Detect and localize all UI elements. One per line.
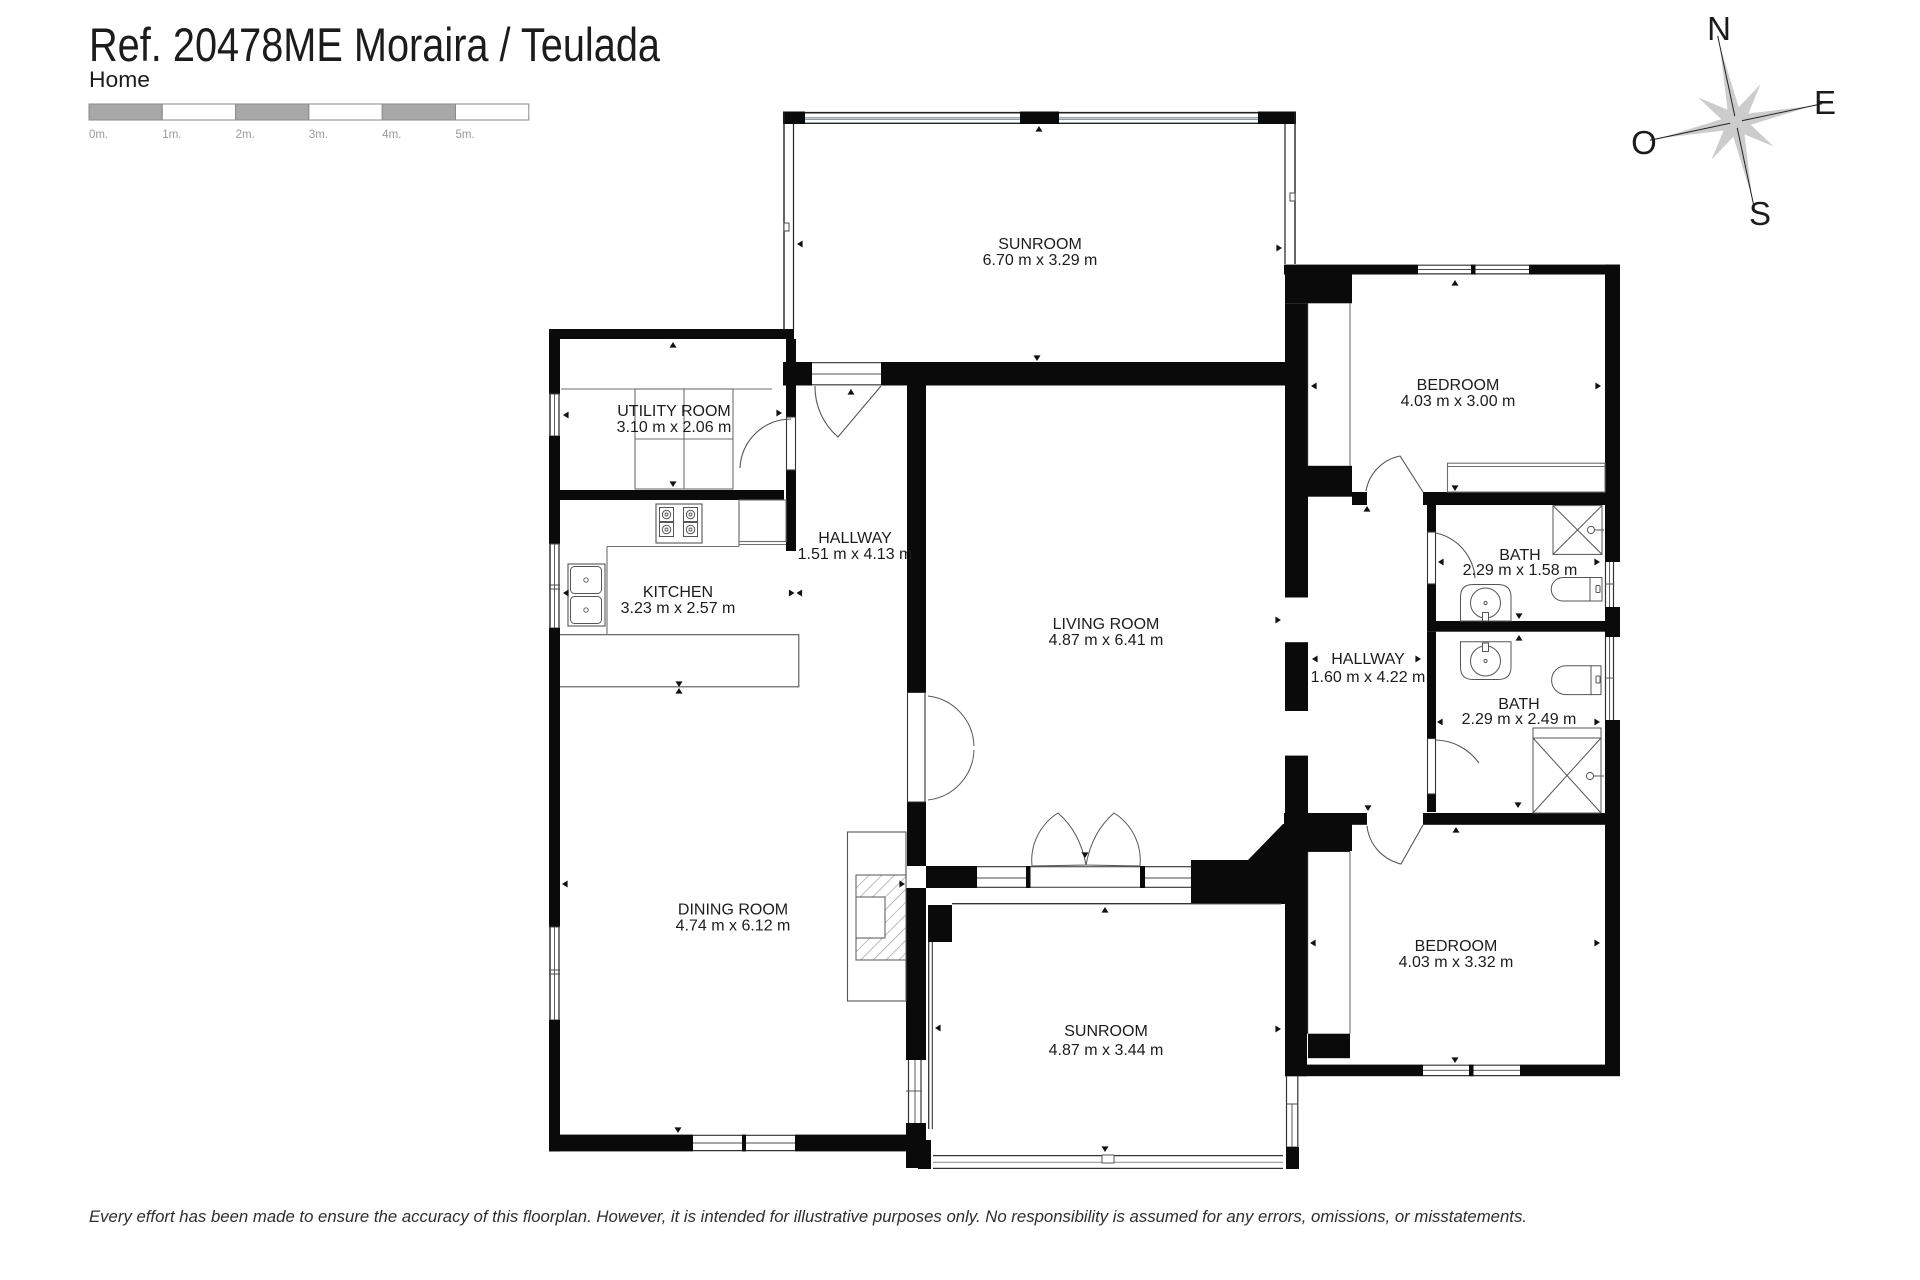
svg-text:BEDROOM: BEDROOM xyxy=(1415,938,1498,955)
svg-text:N: N xyxy=(1707,10,1731,47)
svg-text:1.60 m x 4.22 m: 1.60 m x 4.22 m xyxy=(1311,669,1426,686)
svg-text:UTILITY ROOM: UTILITY ROOM xyxy=(617,403,731,420)
svg-text:LIVING ROOM: LIVING ROOM xyxy=(1053,616,1160,633)
svg-text:Ref. 20478ME Moraira / Teulada: Ref. 20478ME Moraira / Teulada xyxy=(89,18,661,71)
svg-text:3.10 m x 2.06 m: 3.10 m x 2.06 m xyxy=(617,419,732,436)
svg-text:4.87 m x 6.41 m: 4.87 m x 6.41 m xyxy=(1049,632,1164,649)
svg-text:3m.: 3m. xyxy=(309,129,328,141)
svg-text:4.87 m x 3.44 m: 4.87 m x 3.44 m xyxy=(1049,1042,1164,1059)
svg-text:2m.: 2m. xyxy=(236,129,255,141)
svg-text:1m.: 1m. xyxy=(162,129,181,141)
svg-text:2.29 m x 1.58 m: 2.29 m x 1.58 m xyxy=(1463,562,1578,579)
svg-text:4m.: 4m. xyxy=(382,129,401,141)
svg-text:SUNROOM: SUNROOM xyxy=(998,236,1082,253)
svg-text:Every effort has been made to: Every effort has been made to ensure the… xyxy=(89,1208,1527,1226)
svg-text:3.23 m x 2.57 m: 3.23 m x 2.57 m xyxy=(621,600,736,617)
svg-text:1.51 m x 4.13 m: 1.51 m x 4.13 m xyxy=(798,546,913,563)
svg-text:DINING ROOM: DINING ROOM xyxy=(678,902,788,919)
svg-text:0m.: 0m. xyxy=(89,129,108,141)
svg-text:BEDROOM: BEDROOM xyxy=(1417,377,1500,394)
svg-text:6.70 m x 3.29 m: 6.70 m x 3.29 m xyxy=(983,252,1098,269)
svg-text:O: O xyxy=(1631,124,1657,161)
svg-text:4.03 m x 3.32 m: 4.03 m x 3.32 m xyxy=(1399,954,1514,971)
svg-text:S: S xyxy=(1749,195,1771,232)
svg-text:SUNROOM: SUNROOM xyxy=(1064,1023,1148,1040)
svg-text:KITCHEN: KITCHEN xyxy=(643,584,713,601)
svg-text:2.29 m x 2.49 m: 2.29 m x 2.49 m xyxy=(1462,711,1577,728)
svg-text:HALLWAY: HALLWAY xyxy=(818,530,892,547)
svg-text:5m.: 5m. xyxy=(456,129,475,141)
svg-text:Home: Home xyxy=(89,67,150,92)
svg-text:HALLWAY: HALLWAY xyxy=(1331,651,1405,668)
svg-text:4.74 m x 6.12 m: 4.74 m x 6.12 m xyxy=(676,918,791,935)
svg-text:4.03 m x 3.00 m: 4.03 m x 3.00 m xyxy=(1401,393,1516,410)
svg-text:E: E xyxy=(1814,84,1836,121)
